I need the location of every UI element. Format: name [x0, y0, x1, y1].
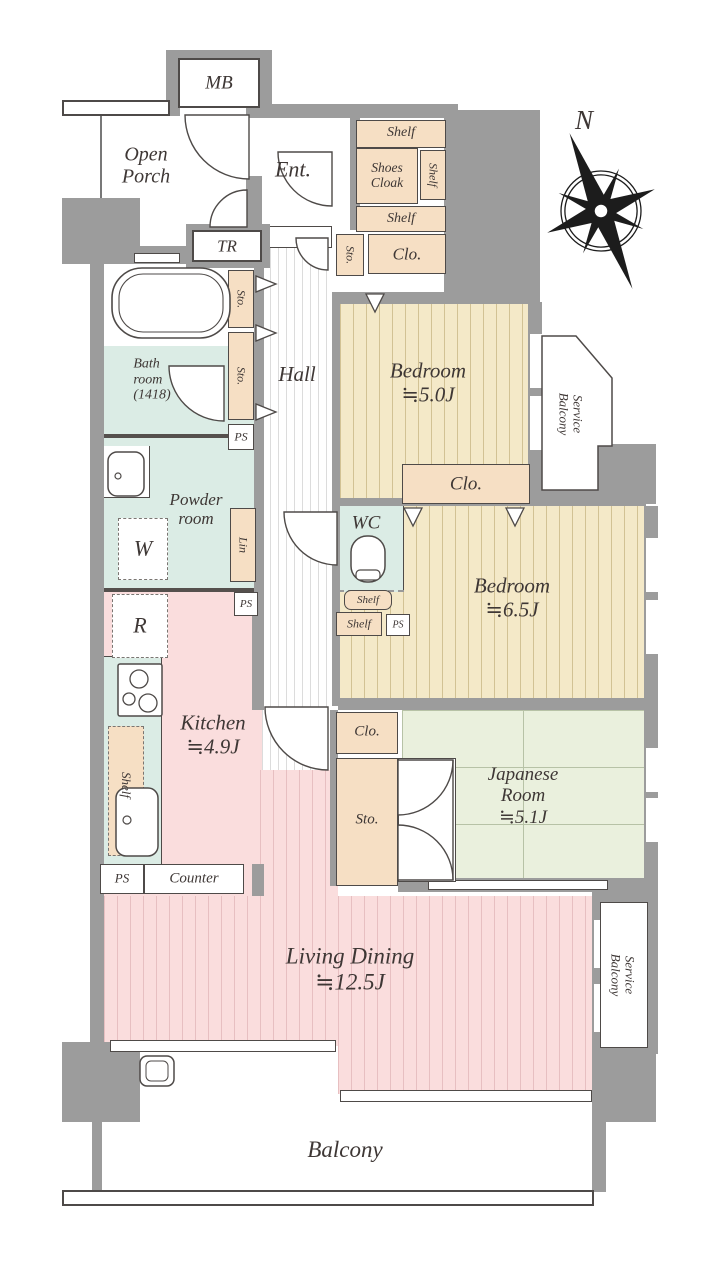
toilet-icon [356, 570, 380, 580]
door-swing-front [185, 115, 249, 179]
label-storage: Sto. [356, 812, 379, 829]
door-swing-bathroom [169, 366, 224, 421]
room-label-entrance: Ent. [275, 158, 311, 183]
door-swing-wc [284, 512, 337, 565]
door-swing-living [265, 707, 328, 770]
label-shoes-cloak: Shoes Cloak [371, 160, 403, 190]
compass-icon [509, 109, 693, 314]
label-storage: Sto. [235, 290, 248, 308]
label-shelf: Shelf [357, 594, 379, 606]
door-swing-japanese-bottom [398, 825, 453, 880]
room-label-bedroom1: Bedroom ≒5.0J [390, 359, 466, 406]
label-shelf: Shelf [347, 617, 371, 630]
label-shelf: Shelf [119, 772, 133, 798]
label-storage: Sto. [235, 367, 248, 385]
label-closet: Clo. [450, 473, 482, 494]
floor-plan: MB Open Porch TR Ent. Shelf Shoes Cloak … [0, 0, 714, 1262]
label-closet: Clo. [393, 244, 422, 263]
label-linen: Lin [237, 537, 250, 553]
label-shelf: Shelf [387, 125, 415, 141]
triangle-door-marker [256, 325, 276, 341]
room-label-powder-room: Powder room [170, 490, 223, 528]
label-pipe-space: PS [240, 598, 252, 610]
triangle-door-marker [366, 294, 384, 312]
label-pipe-space: PS [234, 430, 247, 443]
room-label-open-porch: Open Porch [122, 144, 170, 189]
room-label-hall: Hall [278, 363, 315, 387]
room-label-japanese-room: Japanese Room ≒5.1J [488, 764, 559, 828]
room-label-bedroom2: Bedroom ≒6.5J [474, 574, 550, 621]
room-label-kitchen: Kitchen ≒4.9J [180, 711, 245, 758]
door-swing-trunk [210, 190, 247, 227]
label-washer: W [134, 537, 152, 562]
triangle-door-marker [256, 404, 276, 420]
label-refrigerator: R [133, 614, 146, 639]
north-label: N [575, 105, 593, 135]
fixtures-overlay [0, 0, 714, 1262]
label-service-balcony-top: Service Balcony [557, 393, 584, 436]
room-label-bathroom: Bath room (1418) [133, 356, 170, 403]
basin-icon [108, 452, 144, 496]
label-storage: Sto. [344, 246, 357, 264]
label-pipe-space: PS [115, 872, 129, 887]
door-swing-storage [296, 238, 328, 270]
label-closet: Clo. [354, 724, 379, 741]
label-trunk-room: TR [217, 236, 237, 255]
label-service-balcony-bottom: Service Balcony [609, 954, 636, 997]
label-shelf: Shelf [427, 163, 440, 187]
label-counter: Counter [169, 871, 218, 888]
label-pipe-space: PS [392, 619, 403, 630]
triangle-door-marker [506, 508, 524, 526]
door-swing-japanese-top [398, 760, 453, 815]
label-shelf: Shelf [387, 211, 415, 227]
sink-icon [116, 788, 158, 856]
triangle-door-marker [404, 508, 422, 526]
label-meter-box: MB [205, 72, 232, 93]
room-label-wc: WC [352, 512, 381, 533]
room-label-balcony: Balcony [307, 1137, 382, 1163]
triangle-door-marker [256, 276, 276, 292]
room-label-living-dining: Living Dining ≒12.5J [286, 943, 414, 995]
